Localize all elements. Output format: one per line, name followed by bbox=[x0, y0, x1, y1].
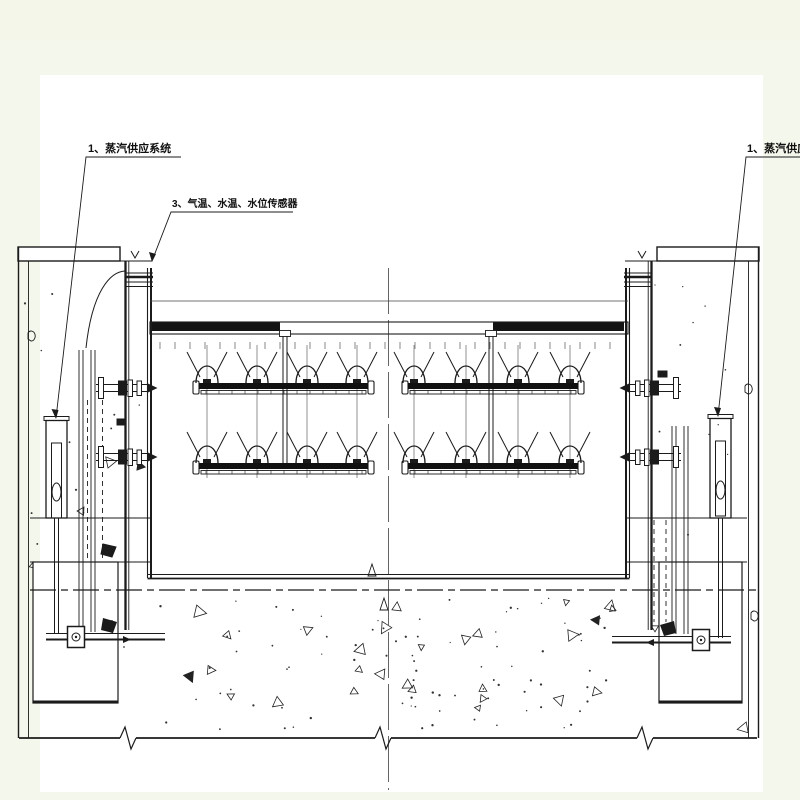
label-sensors: 3、气温、水温、水位传感器 bbox=[172, 197, 299, 210]
concrete-texture-base bbox=[159, 598, 616, 730]
label-steam-left: 1、蒸汽供应系统 bbox=[88, 141, 171, 155]
engineering-section-drawing: 1、蒸汽供应系统 3、气温、水温、水位传感器 1、蒸汽供应系统 bbox=[0, 0, 800, 800]
callout-steam-right: 1、蒸汽供应系统 bbox=[714, 141, 800, 417]
callout-steam-left: 1、蒸汽供应系统 bbox=[52, 141, 182, 419]
ground-line bbox=[19, 727, 757, 749]
callout-sensors: 3、气温、水温、水位传感器 bbox=[149, 197, 299, 262]
steam-header-pipe bbox=[150, 322, 628, 337]
riser-pipes bbox=[283, 336, 493, 466]
label-steam-right: 1、蒸汽供应系统 bbox=[747, 141, 800, 155]
header-bolt-ticks bbox=[160, 342, 610, 349]
